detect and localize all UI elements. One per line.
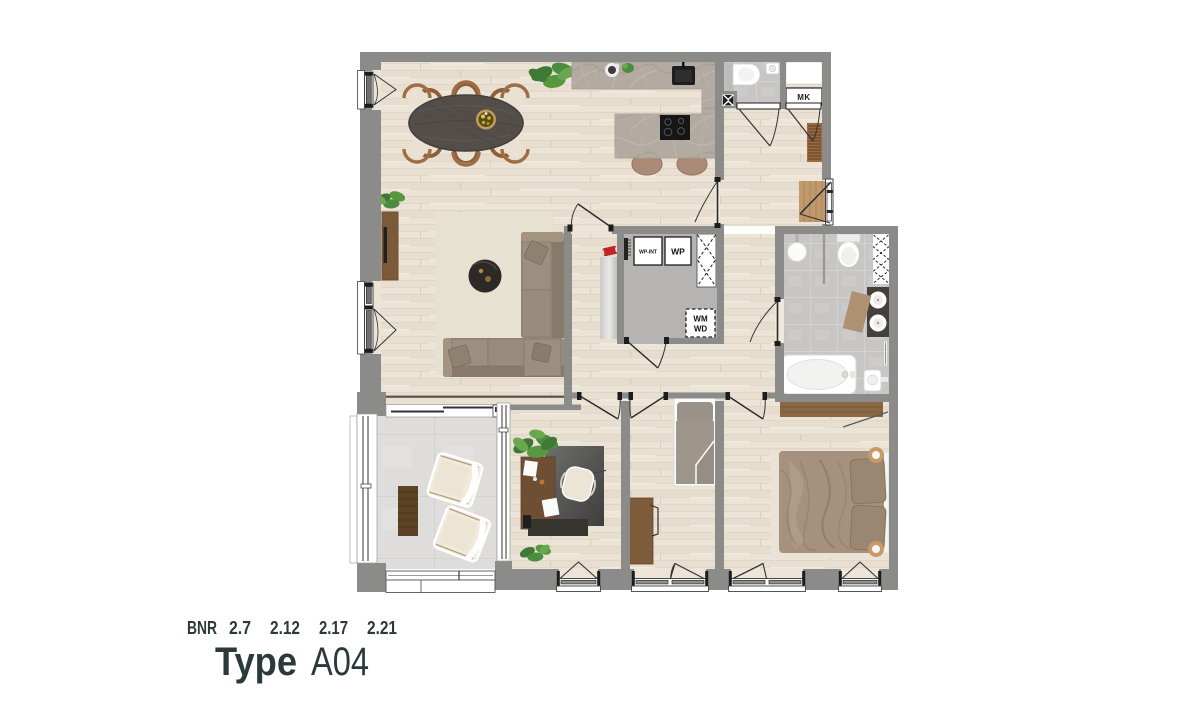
svg-text:BNR: BNR	[187, 618, 217, 638]
svg-text:2.12: 2.12	[270, 618, 300, 638]
svg-text:WM: WM	[693, 315, 708, 324]
svg-text:2.17: 2.17	[319, 618, 348, 638]
svg-text:2.21: 2.21	[367, 618, 397, 638]
svg-text:WP: WP	[671, 247, 685, 257]
svg-text:Type: Type	[215, 640, 297, 684]
svg-text:2.7: 2.7	[229, 618, 251, 638]
svg-text:A04: A04	[311, 640, 369, 684]
svg-text:WD: WD	[694, 325, 708, 334]
svg-text:MK: MK	[797, 93, 810, 102]
svg-text:WP-INT: WP-INT	[639, 250, 657, 256]
